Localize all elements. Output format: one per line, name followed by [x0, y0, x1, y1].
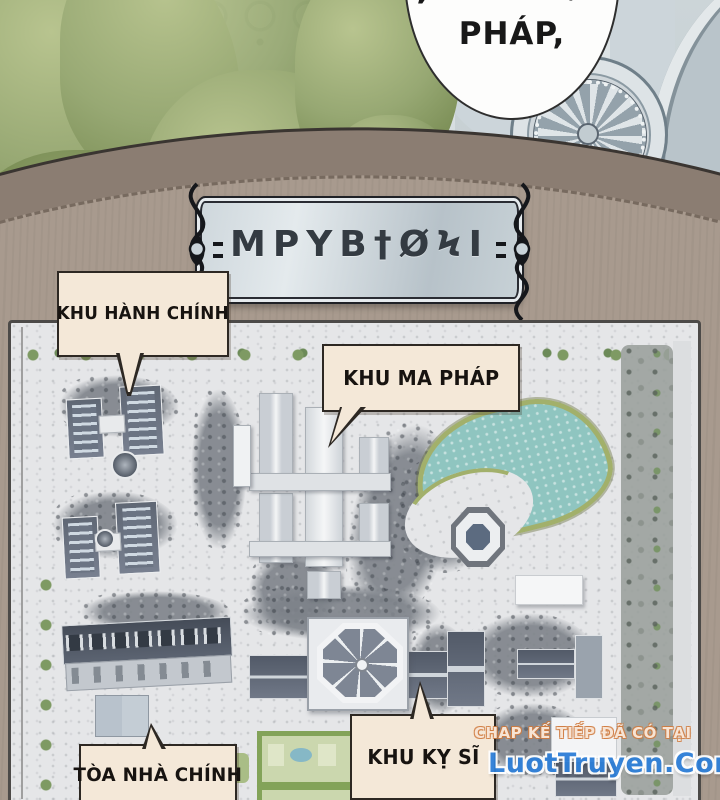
roof-skylights	[122, 507, 153, 568]
tower-cone-roof	[111, 451, 139, 479]
flower-bed	[268, 744, 284, 766]
map-label-main-building-text: TÒA NHÀ CHÍNH	[74, 764, 243, 786]
map-inner-wall	[21, 327, 23, 799]
rose-dome-hub	[355, 658, 369, 672]
clipped-text-fragment: ,	[568, 0, 578, 4]
callout-tail	[108, 350, 152, 398]
flat-building	[515, 575, 583, 605]
map-label-admin: KHU HÀNH CHÍNH	[57, 271, 229, 357]
hall-wing-roof	[249, 655, 315, 699]
garden-pond	[290, 748, 312, 762]
building-roof	[115, 501, 161, 575]
hall	[259, 393, 293, 475]
roof-skylights	[68, 522, 95, 573]
callout-tail	[324, 404, 376, 450]
map-tree-column	[37, 573, 55, 793]
rosette-window-hub	[577, 123, 599, 145]
scroll-ornament-icon	[492, 176, 552, 326]
callout-tail	[400, 678, 444, 722]
map-label-admin-text: KHU HÀNH CHÍNH	[57, 304, 229, 324]
garden-plot	[257, 785, 355, 800]
cross-wing	[249, 541, 391, 557]
comic-page: , , PHÁP, MPYB†ØϞI	[0, 0, 720, 800]
hall-wing-roof	[517, 649, 575, 679]
apse	[307, 571, 341, 599]
map-label-magic-text: KHU MA PHÁP	[343, 366, 499, 390]
watermark-site-name: LuotTruyen.Com	[488, 748, 720, 779]
watermark-line1: CHAP KẾ TIẾP ĐÃ CÓ TẠI	[474, 724, 720, 742]
callout-tail	[134, 720, 174, 752]
roof-skylights	[126, 391, 157, 450]
hall	[575, 635, 603, 699]
main-building	[61, 613, 233, 708]
garden-plot	[257, 731, 355, 787]
knight-east-building	[447, 631, 485, 707]
clipped-text-fragment: ,	[416, 0, 431, 8]
cross-wing	[249, 473, 391, 491]
speech-bubble-text: PHÁP,	[406, 16, 618, 52]
annex	[233, 425, 251, 487]
roof-skylights	[72, 404, 98, 453]
fountain-basin	[466, 524, 490, 550]
map-label-knight-text: KHU KỴ SĨ	[367, 745, 479, 769]
map-label-magic: KHU MA PHÁP	[322, 344, 520, 412]
tower-cone-roof	[95, 529, 115, 549]
gate-sign-rune-text: MPYB†ØϞI	[197, 224, 522, 265]
gate-sign-plaque: MPYB†ØϞI	[195, 196, 524, 304]
building-link	[99, 414, 126, 433]
flower-bed	[318, 744, 336, 766]
map-label-main-building: TÒA NHÀ CHÍNH	[79, 744, 237, 800]
